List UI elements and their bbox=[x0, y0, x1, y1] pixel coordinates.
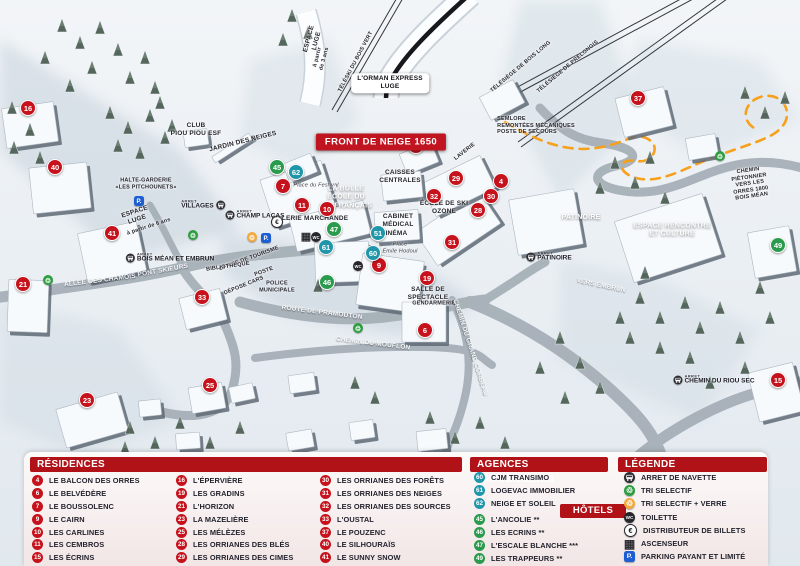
residence-item-41: 41LE SUNNY SNOW bbox=[320, 551, 451, 564]
residence-label-33: L'OUSTAL bbox=[337, 515, 374, 524]
marker-23: 23 bbox=[79, 392, 95, 408]
bus-stop-bois-m-an-et-embrun: ARRETBOIS MÉAN ET EMBRUN bbox=[126, 253, 214, 264]
parking-icon: P. bbox=[134, 196, 144, 206]
marker-badge-41: 41 bbox=[320, 552, 331, 563]
legende-item-toilette: WCTOILETTE bbox=[624, 511, 746, 524]
residence-item-25: 25LES MÉLÈZES bbox=[176, 526, 293, 539]
recycle-icon: ♲ bbox=[353, 323, 363, 333]
bus-stop-text: ARRETVILLAGES bbox=[181, 200, 214, 211]
euro-icon: € bbox=[624, 524, 637, 537]
marker-37: 37 bbox=[630, 90, 646, 106]
marker-51: 51 bbox=[370, 225, 386, 241]
marker-45: 45 bbox=[269, 159, 285, 175]
resort-map-page: ESPACE LUGEà partir de 3 ansTÉLÉSKI DU B… bbox=[0, 0, 800, 566]
bus-stop-icon bbox=[526, 253, 535, 262]
legende-item-ascenseur: ▦ASCENSEUR bbox=[624, 537, 746, 550]
marker-29: 29 bbox=[448, 170, 464, 186]
marker-badge-32: 32 bbox=[320, 501, 331, 512]
residence-label-15: LES ÉCRINS bbox=[49, 553, 94, 562]
legende-label-recycle: TRI SELECTIF bbox=[641, 486, 692, 495]
residence-label-9: LE CAIRN bbox=[49, 515, 85, 524]
legende-label-euro: DISTRIBUTEUR DE BILLETS bbox=[643, 526, 746, 535]
residence-label-40: LE SILHOURAÏS bbox=[337, 540, 395, 549]
legende-header: LÉGENDE bbox=[618, 457, 767, 472]
residence-label-10: LES CARLINES bbox=[49, 528, 104, 537]
residence-item-4: 4LE BALCON DES ORRES bbox=[32, 474, 140, 487]
residence-item-19: 19LES GRADINS bbox=[176, 487, 293, 500]
marker-6: 6 bbox=[417, 322, 433, 338]
residence-label-19: LES GRADINS bbox=[193, 489, 245, 498]
residence-item-37: 37LE POUZENC bbox=[320, 526, 451, 539]
bus-stop-text: ARRETCHEMIN DU RIOU SEC bbox=[684, 375, 754, 386]
legende-label-toilette: TOILETTE bbox=[641, 513, 677, 522]
agence-item-62: 62NEIGE ET SOLEIL bbox=[474, 497, 575, 510]
legende-item-parking: P.PARKING PAYANT ET LIMITÉ bbox=[624, 550, 746, 563]
residence-label-25: LES MÉLÈZES bbox=[193, 528, 245, 537]
residence-label-31: LES ORRIANES DES NEIGES bbox=[337, 489, 442, 498]
legende-item-recycle-verre: ♲TRI SELECTIF + VERRE bbox=[624, 497, 746, 510]
hotel-item-49: 49LES TRAPPEURS ** bbox=[474, 552, 578, 565]
marker-badge-6: 6 bbox=[32, 488, 43, 499]
residence-label-4: LE BALCON DES ORRES bbox=[49, 476, 140, 485]
residence-item-10: 10LES CARLINES bbox=[32, 526, 140, 539]
hotel-label-46: LES ECRINS ** bbox=[491, 528, 544, 537]
marker-15: 15 bbox=[770, 372, 786, 388]
residences-header: RÉSIDENCES bbox=[30, 457, 462, 472]
residence-item-29: 29LES ORRIANES DES CIMES bbox=[176, 551, 293, 564]
residence-label-6: LE BELVÉDÈRE bbox=[49, 489, 106, 498]
marker-60: 60 bbox=[365, 245, 381, 261]
marker-badge-10: 10 bbox=[32, 527, 43, 538]
marker-badge-4: 4 bbox=[32, 475, 43, 486]
recycle-icon: ♲ bbox=[43, 275, 53, 285]
agence-item-60: 60CJM TRANSIMO bbox=[474, 471, 575, 484]
marker-28: 28 bbox=[470, 202, 486, 218]
legend-panel: RÉSIDENCES AGENCES IMMOBILIÈRES LÉGENDE … bbox=[24, 452, 768, 566]
marker-11: 11 bbox=[294, 197, 310, 213]
legende-label-recycle-verre: TRI SELECTIF + VERRE bbox=[641, 499, 727, 508]
marker-badge-40: 40 bbox=[320, 539, 331, 550]
hotel-item-47: 47L'ESCALE BLANCHE *** bbox=[474, 539, 578, 552]
residence-item-21: 21L'HORIZON bbox=[176, 500, 293, 513]
marker-badge-60: 60 bbox=[474, 472, 485, 483]
front-de-neige-banner: FRONT DE NEIGE 1650 bbox=[316, 134, 446, 151]
residence-label-7: LE BOUSSOLENC bbox=[49, 502, 114, 511]
agence-label-62: NEIGE ET SOLEIL bbox=[491, 499, 556, 508]
hotel-label-49: LES TRAPPEURS ** bbox=[491, 554, 562, 563]
marker-16: 16 bbox=[20, 100, 36, 116]
recycle-verre-icon: ♲ bbox=[247, 232, 257, 242]
marker-badge-62: 62 bbox=[474, 498, 485, 509]
residence-item-7: 7LE BOUSSOLENC bbox=[32, 500, 140, 513]
residence-item-30: 30LES ORRIANES DES FORÊTS bbox=[320, 474, 451, 487]
agences-header: AGENCES IMMOBILIÈRES bbox=[470, 457, 608, 472]
recycle-verre-icon: ♲ bbox=[624, 498, 635, 509]
marker-46: 46 bbox=[319, 274, 335, 290]
ascenseur-icon: ▦ bbox=[301, 231, 311, 241]
bus-stop-name: VILLAGES bbox=[181, 204, 214, 211]
bus-stop-name: CHAMP LACAS bbox=[237, 214, 285, 221]
marker-7: 7 bbox=[275, 178, 291, 194]
marker-badge-45: 45 bbox=[474, 514, 485, 525]
residence-label-11: LES CEMBROS bbox=[49, 540, 104, 549]
marker-badge-11: 11 bbox=[32, 539, 43, 550]
marker-33: 33 bbox=[194, 289, 210, 305]
recycle-icon: ♲ bbox=[715, 151, 725, 161]
residence-item-40: 40LE SILHOURAÏS bbox=[320, 538, 451, 551]
marker-61: 61 bbox=[318, 239, 334, 255]
residence-item-16: 16L'ÉPERVIÈRE bbox=[176, 474, 293, 487]
residence-item-28: 28LES ORRIANES DES BLÉS bbox=[176, 538, 293, 551]
agence-label-61: LOGEVAC IMMOBILIER bbox=[491, 486, 575, 495]
marker-badge-61: 61 bbox=[474, 485, 485, 496]
bus-stop-name: CHEMIN DU RIOU SEC bbox=[684, 379, 754, 386]
navette-icon bbox=[624, 472, 635, 483]
hotel-item-46: 46LES ECRINS ** bbox=[474, 526, 578, 539]
marker-19: 19 bbox=[419, 270, 435, 286]
bus-stop-icon bbox=[673, 376, 682, 385]
hotel-label-45: L'ANCOLIE ** bbox=[491, 515, 540, 524]
marker-49: 49 bbox=[770, 237, 786, 253]
legende-item-recycle: ♲TRI SELECTIF bbox=[624, 484, 746, 497]
marker-badge-23: 23 bbox=[176, 514, 187, 525]
bus-stop-text: ARRETBOIS MÉAN ET EMBRUN bbox=[137, 253, 214, 264]
residences-column-2: 16L'ÉPERVIÈRE19LES GRADINS21L'HORIZON23L… bbox=[176, 474, 293, 564]
hotel-label-47: L'ESCALE BLANCHE *** bbox=[491, 541, 578, 550]
recycle-icon: ♲ bbox=[188, 230, 198, 240]
marker-badge-47: 47 bbox=[474, 540, 485, 551]
legende-column: ARRET DE NAVETTE♲TRI SELECTIF♲TRI SELECT… bbox=[624, 471, 746, 563]
marker-badge-30: 30 bbox=[320, 475, 331, 486]
bus-stop-chemin-du-riou-sec: ARRETCHEMIN DU RIOU SEC bbox=[673, 375, 754, 386]
marker-badge-31: 31 bbox=[320, 488, 331, 499]
residence-label-23: LA MAZELIÈRE bbox=[193, 515, 249, 524]
bus-stop-name: PATINOIRE bbox=[537, 256, 571, 263]
agences-column: 60CJM TRANSIMO61LOGEVAC IMMOBILIER62NEIG… bbox=[474, 471, 575, 510]
hotel-item-45: 45L'ANCOLIE ** bbox=[474, 513, 578, 526]
residence-label-29: LES ORRIANES DES CIMES bbox=[193, 553, 293, 562]
residence-label-32: LES ORRIANES DES SOURCES bbox=[337, 502, 451, 511]
marker-4: 4 bbox=[493, 173, 509, 189]
marker-badge-25: 25 bbox=[176, 527, 187, 538]
marker-badge-15: 15 bbox=[32, 552, 43, 563]
marker-badge-21: 21 bbox=[176, 501, 187, 512]
marker-30: 30 bbox=[483, 188, 499, 204]
residence-item-6: 6LE BELVÉDÈRE bbox=[32, 487, 140, 500]
marker-badge-16: 16 bbox=[176, 475, 187, 486]
marker-badge-19: 19 bbox=[176, 488, 187, 499]
marker-25: 25 bbox=[202, 377, 218, 393]
agence-item-61: 61LOGEVAC IMMOBILIER bbox=[474, 484, 575, 497]
bus-stop-name: BOIS MÉAN ET EMBRUN bbox=[137, 257, 214, 264]
marker-badge-49: 49 bbox=[474, 553, 485, 564]
legende-label-parking: PARKING PAYANT ET LIMITÉ bbox=[641, 552, 745, 561]
marker-47: 47 bbox=[326, 221, 342, 237]
ascenseur-icon: ▦ bbox=[624, 538, 635, 549]
residence-item-15: 15LES ÉCRINS bbox=[32, 551, 140, 564]
residence-label-28: LES ORRIANES DES BLÉS bbox=[193, 540, 290, 549]
marker-badge-33: 33 bbox=[320, 514, 331, 525]
residence-item-33: 33L'OUSTAL bbox=[320, 513, 451, 526]
parking-icon: P. bbox=[624, 551, 635, 562]
marker-badge-46: 46 bbox=[474, 527, 485, 538]
toilette-icon: WC bbox=[624, 512, 635, 523]
marker-badge-37: 37 bbox=[320, 527, 331, 538]
parking-icon: P. bbox=[261, 233, 271, 243]
bus-stop-icon bbox=[126, 254, 135, 263]
marker-40: 40 bbox=[47, 159, 63, 175]
marker-badge-28: 28 bbox=[176, 539, 187, 550]
marker-41: 41 bbox=[104, 225, 120, 241]
recycle-icon: ♲ bbox=[624, 485, 635, 496]
marker-badge-9: 9 bbox=[32, 514, 43, 525]
bus-stop-villages: ARRETVILLAGES bbox=[181, 200, 225, 211]
marker-32: 32 bbox=[426, 188, 442, 204]
residence-item-9: 9LE CAIRN bbox=[32, 513, 140, 526]
legende-item-navette: ARRET DE NAVETTE bbox=[624, 471, 746, 484]
bus-stop-patinoire: ARRETPATINOIRE bbox=[526, 252, 571, 263]
marker-31: 31 bbox=[444, 234, 460, 250]
bus-stop-text: ARRETCHAMP LACAS bbox=[237, 210, 285, 221]
residence-label-21: L'HORIZON bbox=[193, 502, 234, 511]
residence-label-37: LE POUZENC bbox=[337, 528, 386, 537]
legende-label-ascenseur: ASCENSEUR bbox=[641, 539, 688, 548]
hotels-column: 45L'ANCOLIE **46LES ECRINS **47L'ESCALE … bbox=[474, 513, 578, 565]
residences-column-1: 4LE BALCON DES ORRES6LE BELVÉDÈRE7LE BOU… bbox=[32, 474, 140, 564]
marker-10: 10 bbox=[319, 201, 335, 217]
bus-stop-text: ARRETPATINOIRE bbox=[537, 252, 571, 263]
marker-21: 21 bbox=[15, 276, 31, 292]
bus-stop-champ-lacas: ARRETCHAMP LACAS bbox=[226, 210, 285, 221]
residence-label-30: LES ORRIANES DES FORÊTS bbox=[337, 476, 444, 485]
residences-column-3: 30LES ORRIANES DES FORÊTS31LES ORRIANES … bbox=[320, 474, 451, 564]
legende-item-euro: €DISTRIBUTEUR DE BILLETS bbox=[624, 524, 746, 537]
bus-stop-icon bbox=[226, 211, 235, 220]
residence-label-16: L'ÉPERVIÈRE bbox=[193, 476, 243, 485]
legende-label-navette: ARRET DE NAVETTE bbox=[641, 473, 716, 482]
residence-item-11: 11LES CEMBROS bbox=[32, 538, 140, 551]
residence-label-41: LE SUNNY SNOW bbox=[337, 553, 401, 562]
bus-stop-icon bbox=[216, 201, 225, 210]
residence-item-31: 31LES ORRIANES DES NEIGES bbox=[320, 487, 451, 500]
marker-badge-7: 7 bbox=[32, 501, 43, 512]
residence-item-23: 23LA MAZELIÈRE bbox=[176, 513, 293, 526]
residence-item-32: 32LES ORRIANES DES SOURCES bbox=[320, 500, 451, 513]
marker-badge-29: 29 bbox=[176, 552, 187, 563]
agence-label-60: CJM TRANSIMO bbox=[491, 473, 549, 482]
marker-62: 62 bbox=[288, 164, 304, 180]
toilette-icon: WC bbox=[353, 261, 363, 271]
